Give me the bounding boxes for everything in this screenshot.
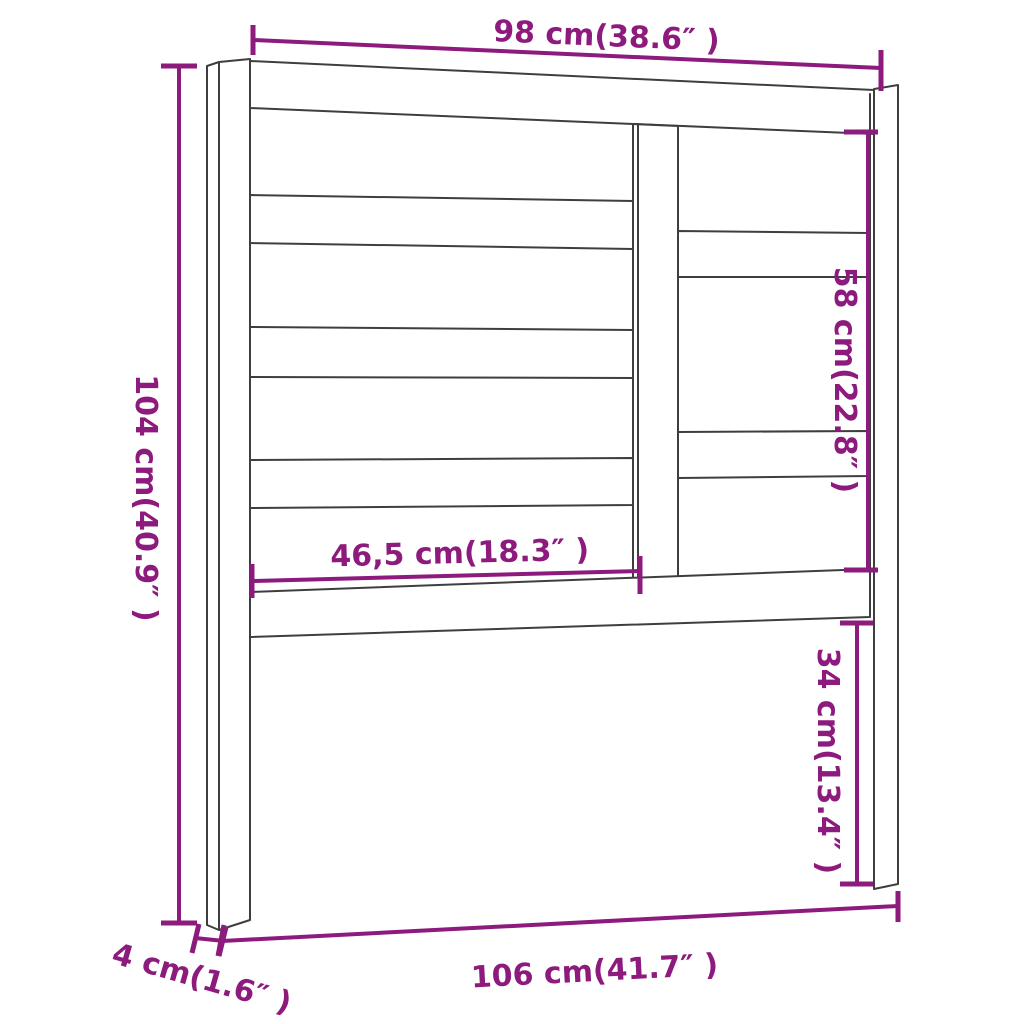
left-post-side-face bbox=[207, 62, 219, 930]
dimension-label-right-lower-height: 34 cm(13.4″ ) bbox=[810, 648, 845, 875]
left-slat-2 bbox=[250, 327, 633, 378]
headboard-drawing bbox=[207, 59, 898, 930]
left-slat-3 bbox=[250, 458, 633, 508]
dimension-tick-right bbox=[219, 927, 226, 956]
dimension-label-leg-depth: 4 cm(1.6″ ) bbox=[108, 937, 295, 1022]
dimension-bottom-width: 106 cm(41.7″ ) bbox=[218, 891, 898, 995]
top-rail bbox=[250, 61, 874, 134]
right-post-front-face bbox=[874, 85, 898, 889]
diagram-canvas: 98 cm(38.6″ ) 104 cm(40.9″ ) 58 cm(22.8″… bbox=[0, 0, 1024, 1024]
dimension-right-lower-height: 34 cm(13.4″ ) bbox=[810, 623, 873, 884]
dimension-tick-left bbox=[192, 924, 199, 953]
dimension-label-bottom-width: 106 cm(41.7″ ) bbox=[470, 948, 719, 996]
dimension-line bbox=[222, 906, 898, 941]
left-post-front-face bbox=[219, 59, 250, 930]
dimension-label-right-upper-height: 58 cm(22.8″ ) bbox=[827, 267, 862, 494]
middle-stile bbox=[633, 124, 678, 580]
dimension-label-left-height: 104 cm(40.9″ ) bbox=[128, 374, 163, 621]
headboard-dimension-diagram: 98 cm(38.6″ ) 104 cm(40.9″ ) 58 cm(22.8″… bbox=[0, 0, 1024, 1024]
dimension-left-height: 104 cm(40.9″ ) bbox=[128, 66, 197, 923]
left-slat-1 bbox=[250, 195, 633, 249]
dimension-label-inner-width: 46,5 cm(18.3″ ) bbox=[330, 533, 590, 575]
